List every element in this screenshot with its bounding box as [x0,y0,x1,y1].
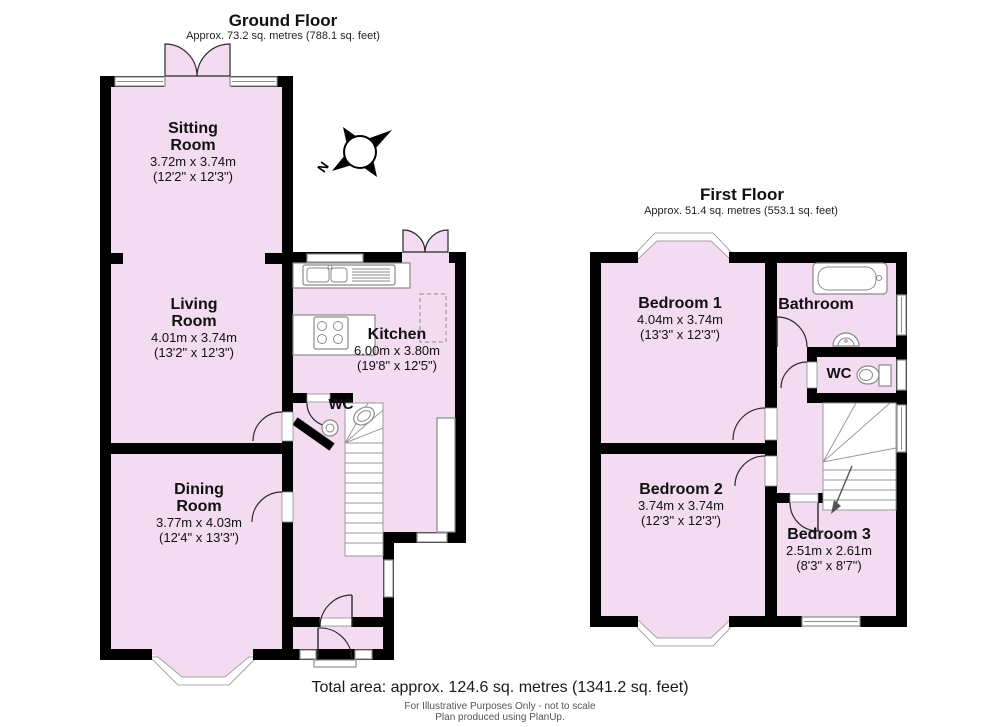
stove-icon [314,317,348,349]
room-name: Sitting Room [150,120,236,154]
ground-floor-title: Ground Floor [229,12,338,30]
room-name: Bedroom 1 [637,295,723,312]
room-label-bedroom-3: Bedroom 3 2.51m x 2.61m (8'3" x 8'7") [786,526,872,573]
room-dim-metric: 4.01m x 3.74m [151,330,237,345]
room-name: Bedroom 3 [786,526,872,543]
room-label-sitting-room: Sitting Room 3.72m x 3.74m (12'2" x 12'3… [150,120,236,184]
room-label-bedroom-2: Bedroom 2 3.74m x 3.74m (12'3" x 12'3") [638,481,724,528]
room-dim-imperial: (8'3" x 8'7") [786,558,872,573]
room-dim-imperial: (19'8" x 12'5") [354,358,440,373]
disclaimer-line-1: For Illustrative Purposes Only - not to … [404,701,595,712]
room-name: Living Room [151,296,237,330]
ground-floor-area-note: Approx. 73.2 sq. metres (788.1 sq. feet) [186,30,380,42]
room-dim-imperial: (13'2" x 12'3") [151,345,237,360]
room-label-bathroom: Bathroom [778,296,854,313]
first-floor-area-note: Approx. 51.4 sq. metres (553.1 sq. feet) [644,205,838,217]
room-dim-metric: 3.74m x 3.74m [638,498,724,513]
room-name: WC [827,365,852,382]
room-label-bedroom-1: Bedroom 1 4.04m x 3.74m (13'3" x 12'3") [637,295,723,342]
room-name: Kitchen [354,326,440,343]
first-floor-stairs [823,403,896,514]
kitchen-counter-right [437,418,455,532]
room-label-kitchen: Kitchen 6.00m x 3.80m (19'8" x 12'5") [354,326,440,373]
wc-first-toilet-icon [857,366,879,384]
room-dim-metric: 4.04m x 3.74m [637,312,723,327]
wc-toilet-icon [322,420,338,436]
room-label-wc-first: WC [827,365,852,382]
room-dim-metric: 2.51m x 2.61m [786,543,872,558]
room-dim-metric: 3.72m x 3.74m [150,154,236,169]
compass-icon: N [314,127,392,177]
room-dim-imperial: (12'3" x 12'3") [638,513,724,528]
disclaimer-line-2: Plan produced using PlanUp. [435,712,565,723]
room-name: Dining Room [156,481,242,515]
floorplan-drawing: N [0,0,1000,727]
room-name: Bathroom [778,296,854,313]
first-floor-title: First Floor [700,186,784,204]
floorplan-page: N Ground Floor Approx. 73.2 sq. metres (… [0,0,1000,727]
room-dim-imperial: (12'2" x 12'3") [150,169,236,184]
room-name: Bedroom 2 [638,481,724,498]
room-name: WC [329,396,354,413]
ground-floor-stairs [345,403,383,556]
kitchen-french-doors [403,230,425,252]
compass-north-label: N [314,159,332,175]
room-dim-imperial: (13'3" x 12'3") [637,327,723,342]
room-dim-metric: 6.00m x 3.80m [354,343,440,358]
room-dim-metric: 3.77m x 4.03m [156,515,242,530]
room-label-living-room: Living Room 4.01m x 3.74m (13'2" x 12'3"… [151,296,237,360]
total-area-text: Total area: approx. 124.6 sq. metres (13… [311,679,688,697]
room-dim-imperial: (12'4" x 13'3") [156,530,242,545]
sitting-room-french-doors [165,44,197,76]
room-label-wc-ground: WC [329,396,354,413]
room-label-dining-room: Dining Room 3.77m x 4.03m (12'4" x 13'3"… [156,481,242,545]
wc-first-cistern [879,365,891,386]
